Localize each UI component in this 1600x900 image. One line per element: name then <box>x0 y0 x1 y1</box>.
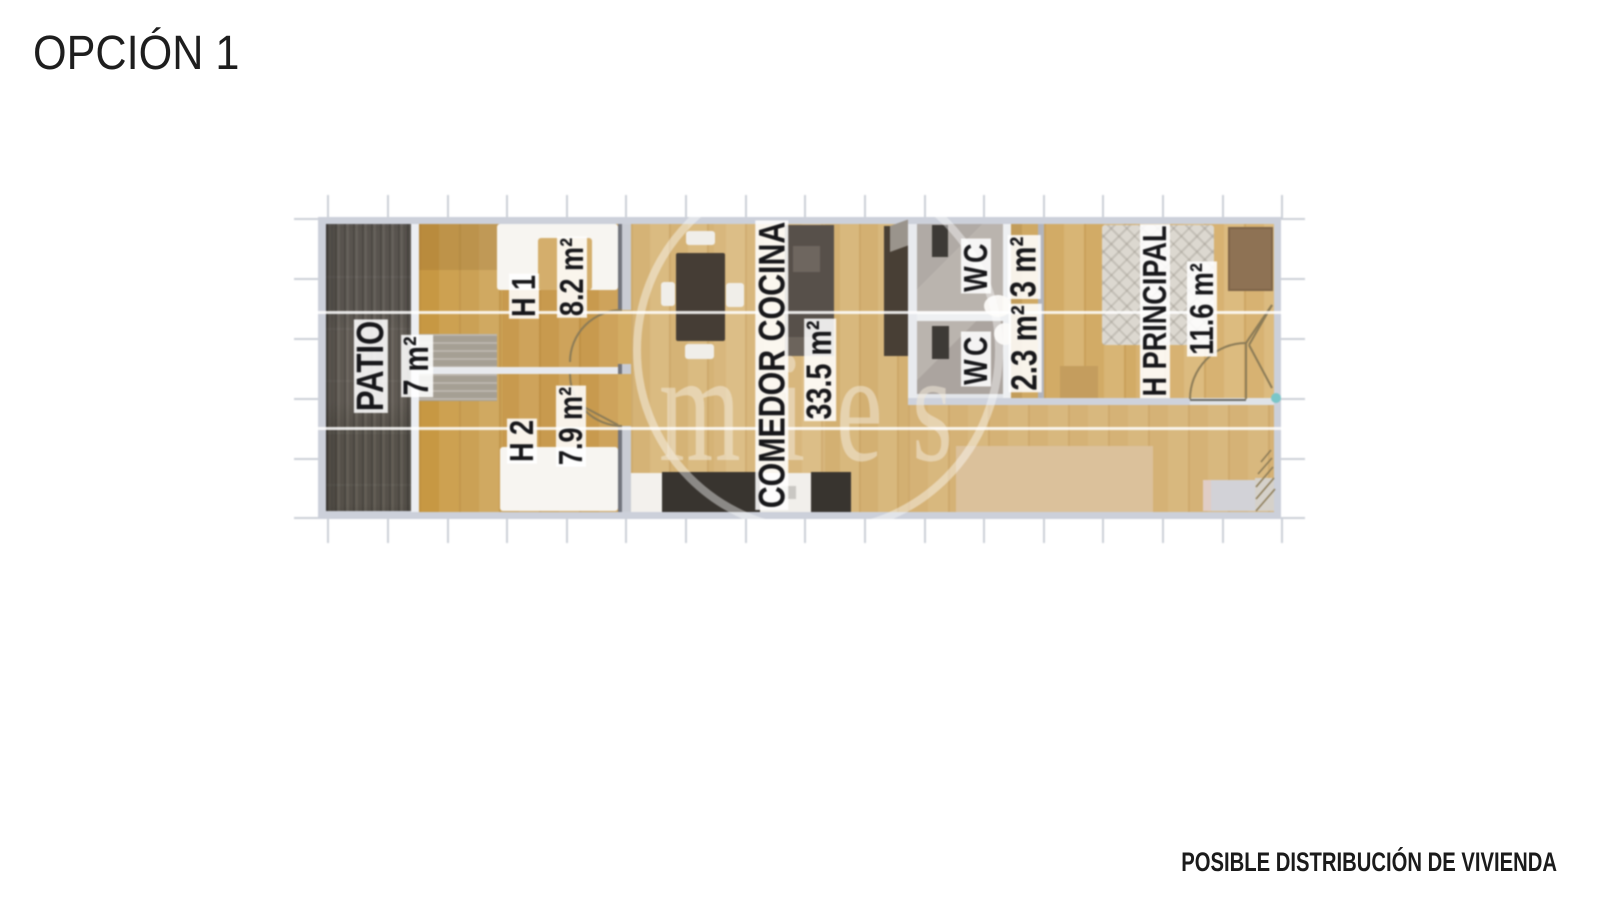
svg-text:e: e <box>836 320 883 494</box>
svg-text:s: s <box>912 320 953 494</box>
svg-text:m: m <box>659 320 741 494</box>
